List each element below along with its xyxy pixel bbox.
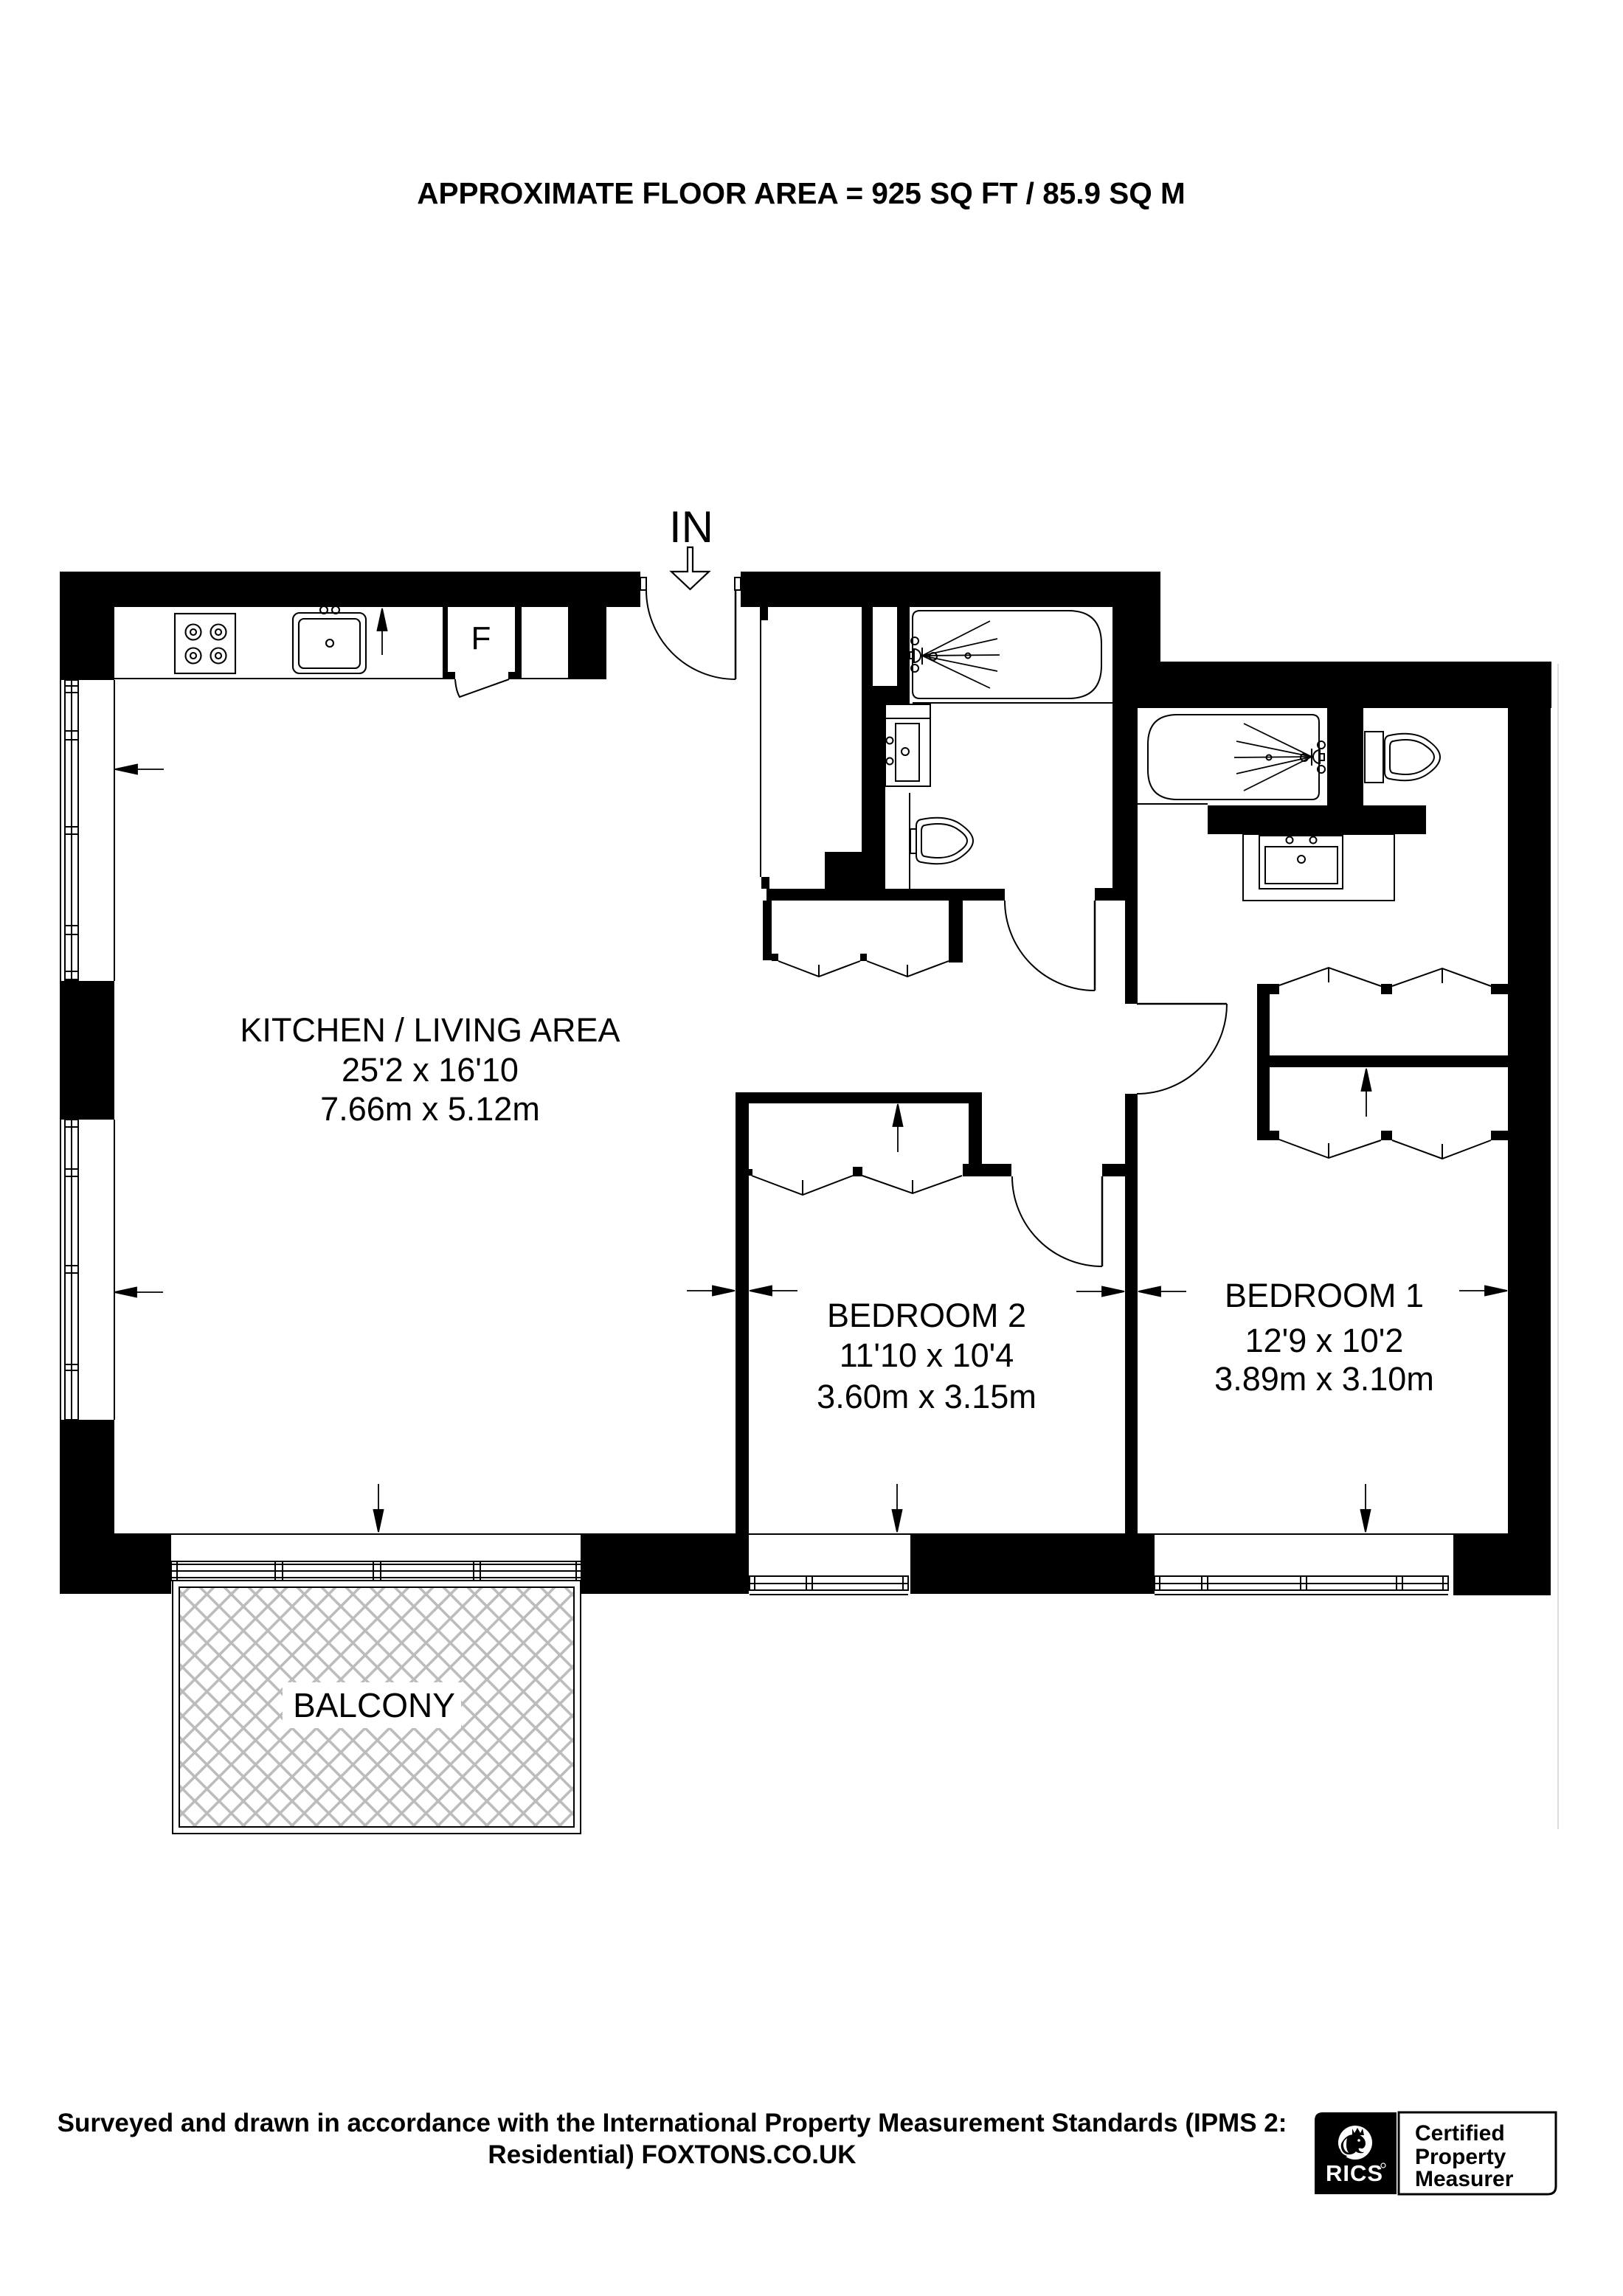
- svg-text:KITCHEN / LIVING AREA: KITCHEN / LIVING AREA: [240, 1011, 620, 1049]
- svg-text:Residential) FOXTONS.CO.UK: Residential) FOXTONS.CO.UK: [488, 2140, 856, 2169]
- svg-text:12'9 x 10'2: 12'9 x 10'2: [1245, 1322, 1404, 1359]
- svg-text:IN: IN: [669, 502, 713, 552]
- svg-text:BEDROOM 1: BEDROOM 1: [1225, 1277, 1424, 1314]
- svg-text:3.60m x 3.15m: 3.60m x 3.15m: [817, 1378, 1037, 1415]
- svg-text:RICS: RICS: [1326, 2160, 1383, 2186]
- svg-text:APPROXIMATE FLOOR AREA = 925 S: APPROXIMATE FLOOR AREA = 925 SQ FT / 85.…: [417, 176, 1186, 210]
- svg-text:Surveyed and drawn in accordan: Surveyed and drawn in accordance with th…: [58, 2109, 1287, 2137]
- svg-text:F: F: [471, 620, 491, 656]
- svg-text:Certified: Certified: [1415, 2121, 1505, 2146]
- svg-text:25'2 x 16'10: 25'2 x 16'10: [342, 1051, 519, 1089]
- svg-text:BEDROOM 2: BEDROOM 2: [827, 1297, 1026, 1334]
- svg-text:7.66m x 5.12m: 7.66m x 5.12m: [320, 1090, 540, 1128]
- svg-text:3.89m x 3.10m: 3.89m x 3.10m: [1214, 1360, 1434, 1398]
- svg-text:Property: Property: [1415, 2145, 1506, 2169]
- svg-text:BALCONY: BALCONY: [293, 1686, 455, 1724]
- svg-text:Measurer: Measurer: [1415, 2167, 1514, 2191]
- svg-text:11'10 x 10'4: 11'10 x 10'4: [840, 1336, 1014, 1374]
